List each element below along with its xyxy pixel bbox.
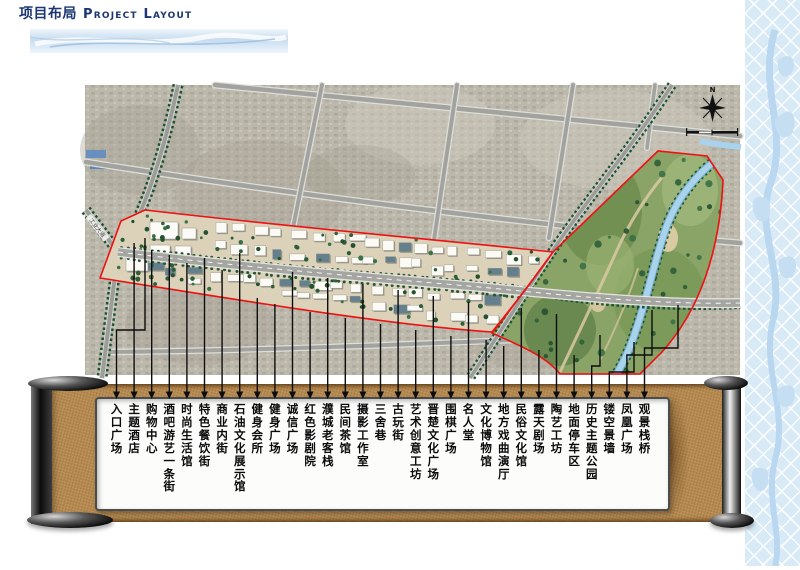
scroll-roller-right <box>722 381 741 524</box>
svg-text:N: N <box>710 86 716 94</box>
header-banner <box>30 29 288 53</box>
blue-roof-building <box>86 150 106 158</box>
scroll-cap <box>28 376 108 391</box>
scroll-cap <box>704 376 748 390</box>
scroll-cap <box>27 512 113 528</box>
scroll-roller-left <box>31 381 52 524</box>
page-title: 项目布局Project Layout <box>19 3 192 23</box>
water-swirl-icon <box>30 29 288 53</box>
legend-panel <box>95 397 670 511</box>
page-title-en: Project Layout <box>83 7 192 22</box>
scroll-cap <box>710 513 754 528</box>
project-layout-slide: { "header": { "title_cn": "项目布局", "title… <box>0 0 800 566</box>
page-title-cn: 项目布局 <box>19 6 77 22</box>
